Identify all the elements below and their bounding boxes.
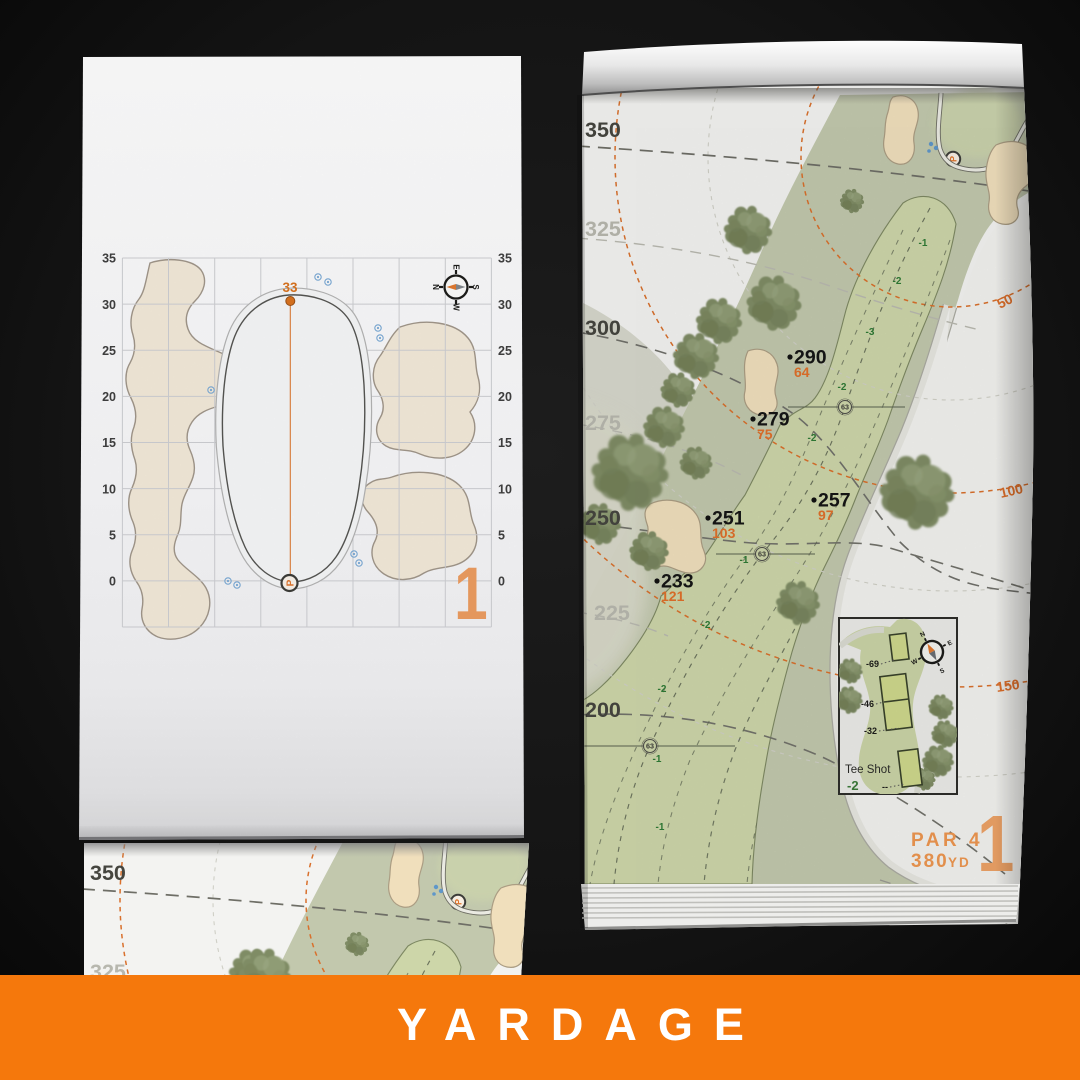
svg-text:YARDAGE: YARDAGE <box>397 999 765 1050</box>
